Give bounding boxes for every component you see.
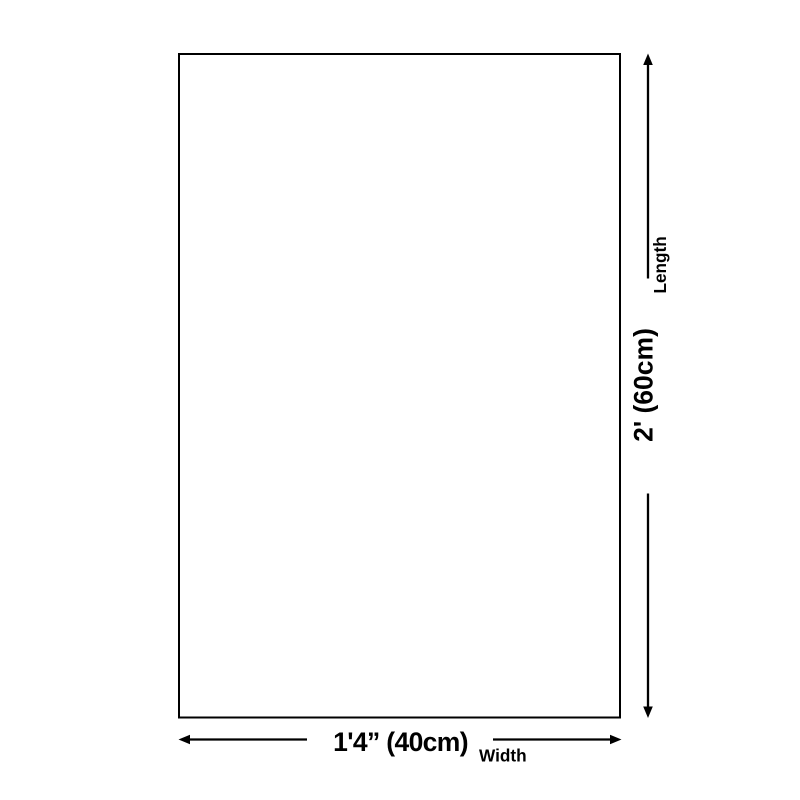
svg-text:2' (60cm): 2' (60cm) — [629, 328, 659, 442]
svg-text:Length: Length — [650, 236, 670, 293]
svg-text:Width: Width — [479, 746, 527, 766]
svg-text:1'4” (40cm): 1'4” (40cm) — [333, 727, 468, 757]
